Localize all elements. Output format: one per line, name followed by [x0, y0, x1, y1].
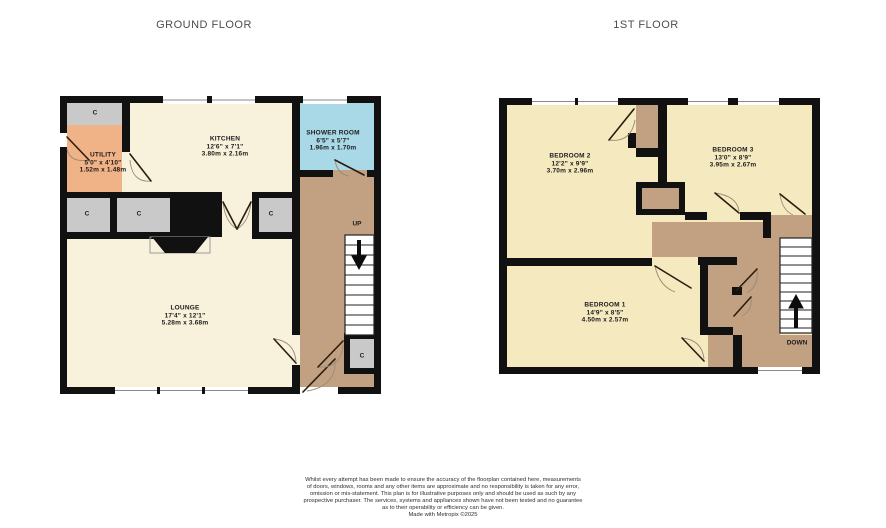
stairs-up-label: UP — [352, 221, 361, 228]
floorplan-page: GROUND FLOOR 1ST FLOOR — [0, 0, 886, 528]
bedroom2-label: BEDROOM 2 12'2" x 9'9" 3.70m x 2.96m — [547, 153, 594, 176]
closet-marker: C — [85, 211, 90, 218]
kitchen-label: KITCHEN 12'6" x 7'1" 3.80m x 2.16m — [202, 136, 249, 159]
utility-label: UTILITY 5'0" x 4'10" 1.52m x 1.48m — [80, 152, 127, 175]
side-door-opening — [60, 133, 67, 147]
disclaimer-line: as to their operability or efficiency ca… — [304, 505, 583, 512]
bedroom1-label: BEDROOM 1 14'9" x 8'5" 4.50m x 2.57m — [582, 302, 629, 325]
room-name: KITCHEN — [202, 136, 249, 144]
room-metric: 3.70m x 2.96m — [547, 168, 594, 176]
room-imperial: 5'0" x 4'10" — [80, 159, 127, 167]
room-metric: 1.96m x 1.70m — [306, 145, 359, 153]
room-imperial: 17'4" x 12'1" — [162, 312, 209, 320]
chimney-breast — [170, 192, 222, 237]
room-metric: 4.50m x 2.57m — [582, 317, 629, 325]
stairs-down-label: DOWN — [787, 340, 808, 347]
room-imperial: 14'9" x 8'5" — [582, 309, 629, 317]
closet-marker: C — [269, 211, 274, 218]
room-name: UTILITY — [80, 152, 127, 160]
first-stairs — [780, 238, 812, 333]
disclaimer-line: of doors, windows, rooms and any other i… — [304, 484, 583, 491]
closet-marker: C — [360, 353, 365, 360]
disclaimer-line: Whilst every attempt has been made to en… — [304, 477, 583, 484]
ground-stairs — [345, 235, 374, 335]
closet-marker: C — [137, 211, 142, 218]
room-name: SHOWER ROOM — [306, 130, 359, 138]
disclaimer-line: prospective purchaser. The services, sys… — [304, 498, 583, 505]
lounge-label: LOUNGE 17'4" x 12'1" 5.28m x 3.68m — [162, 305, 209, 328]
room-name: BEDROOM 1 — [582, 302, 629, 310]
shower-room-label: SHOWER ROOM 6'5" x 5'7" 1.96m x 1.70m — [306, 130, 359, 153]
disclaimer: Whilst every attempt has been made to en… — [304, 477, 583, 519]
room-metric: 3.95m x 2.67m — [710, 162, 757, 170]
closet-marker: C — [93, 110, 98, 117]
room-imperial: 12'6" x 7'1" — [202, 143, 249, 151]
room-name: BEDROOM 2 — [547, 153, 594, 161]
room-name: BEDROOM 3 — [710, 147, 757, 155]
room-metric: 5.28m x 3.68m — [162, 320, 209, 328]
credit-line: Made with Metropix ©2025 — [304, 512, 583, 519]
ground-floor-title: GROUND FLOOR — [156, 19, 252, 31]
bedroom3-label: BEDROOM 3 13'0" x 8'9" 3.95m x 2.67m — [710, 147, 757, 170]
first-floor-title: 1ST FLOOR — [613, 19, 678, 31]
room-name: LOUNGE — [162, 305, 209, 313]
room-imperial: 12'2" x 9'9" — [547, 160, 594, 168]
first-structure — [499, 98, 820, 374]
room-metric: 3.80m x 2.16m — [202, 151, 249, 159]
first-floor-plan — [495, 90, 825, 382]
disclaimer-line: omission or mis-statement. This plan is … — [304, 491, 583, 498]
room-imperial: 13'0" x 8'9" — [710, 154, 757, 162]
room-imperial: 6'5" x 5'7" — [306, 137, 359, 145]
room-metric: 1.52m x 1.48m — [80, 167, 127, 175]
